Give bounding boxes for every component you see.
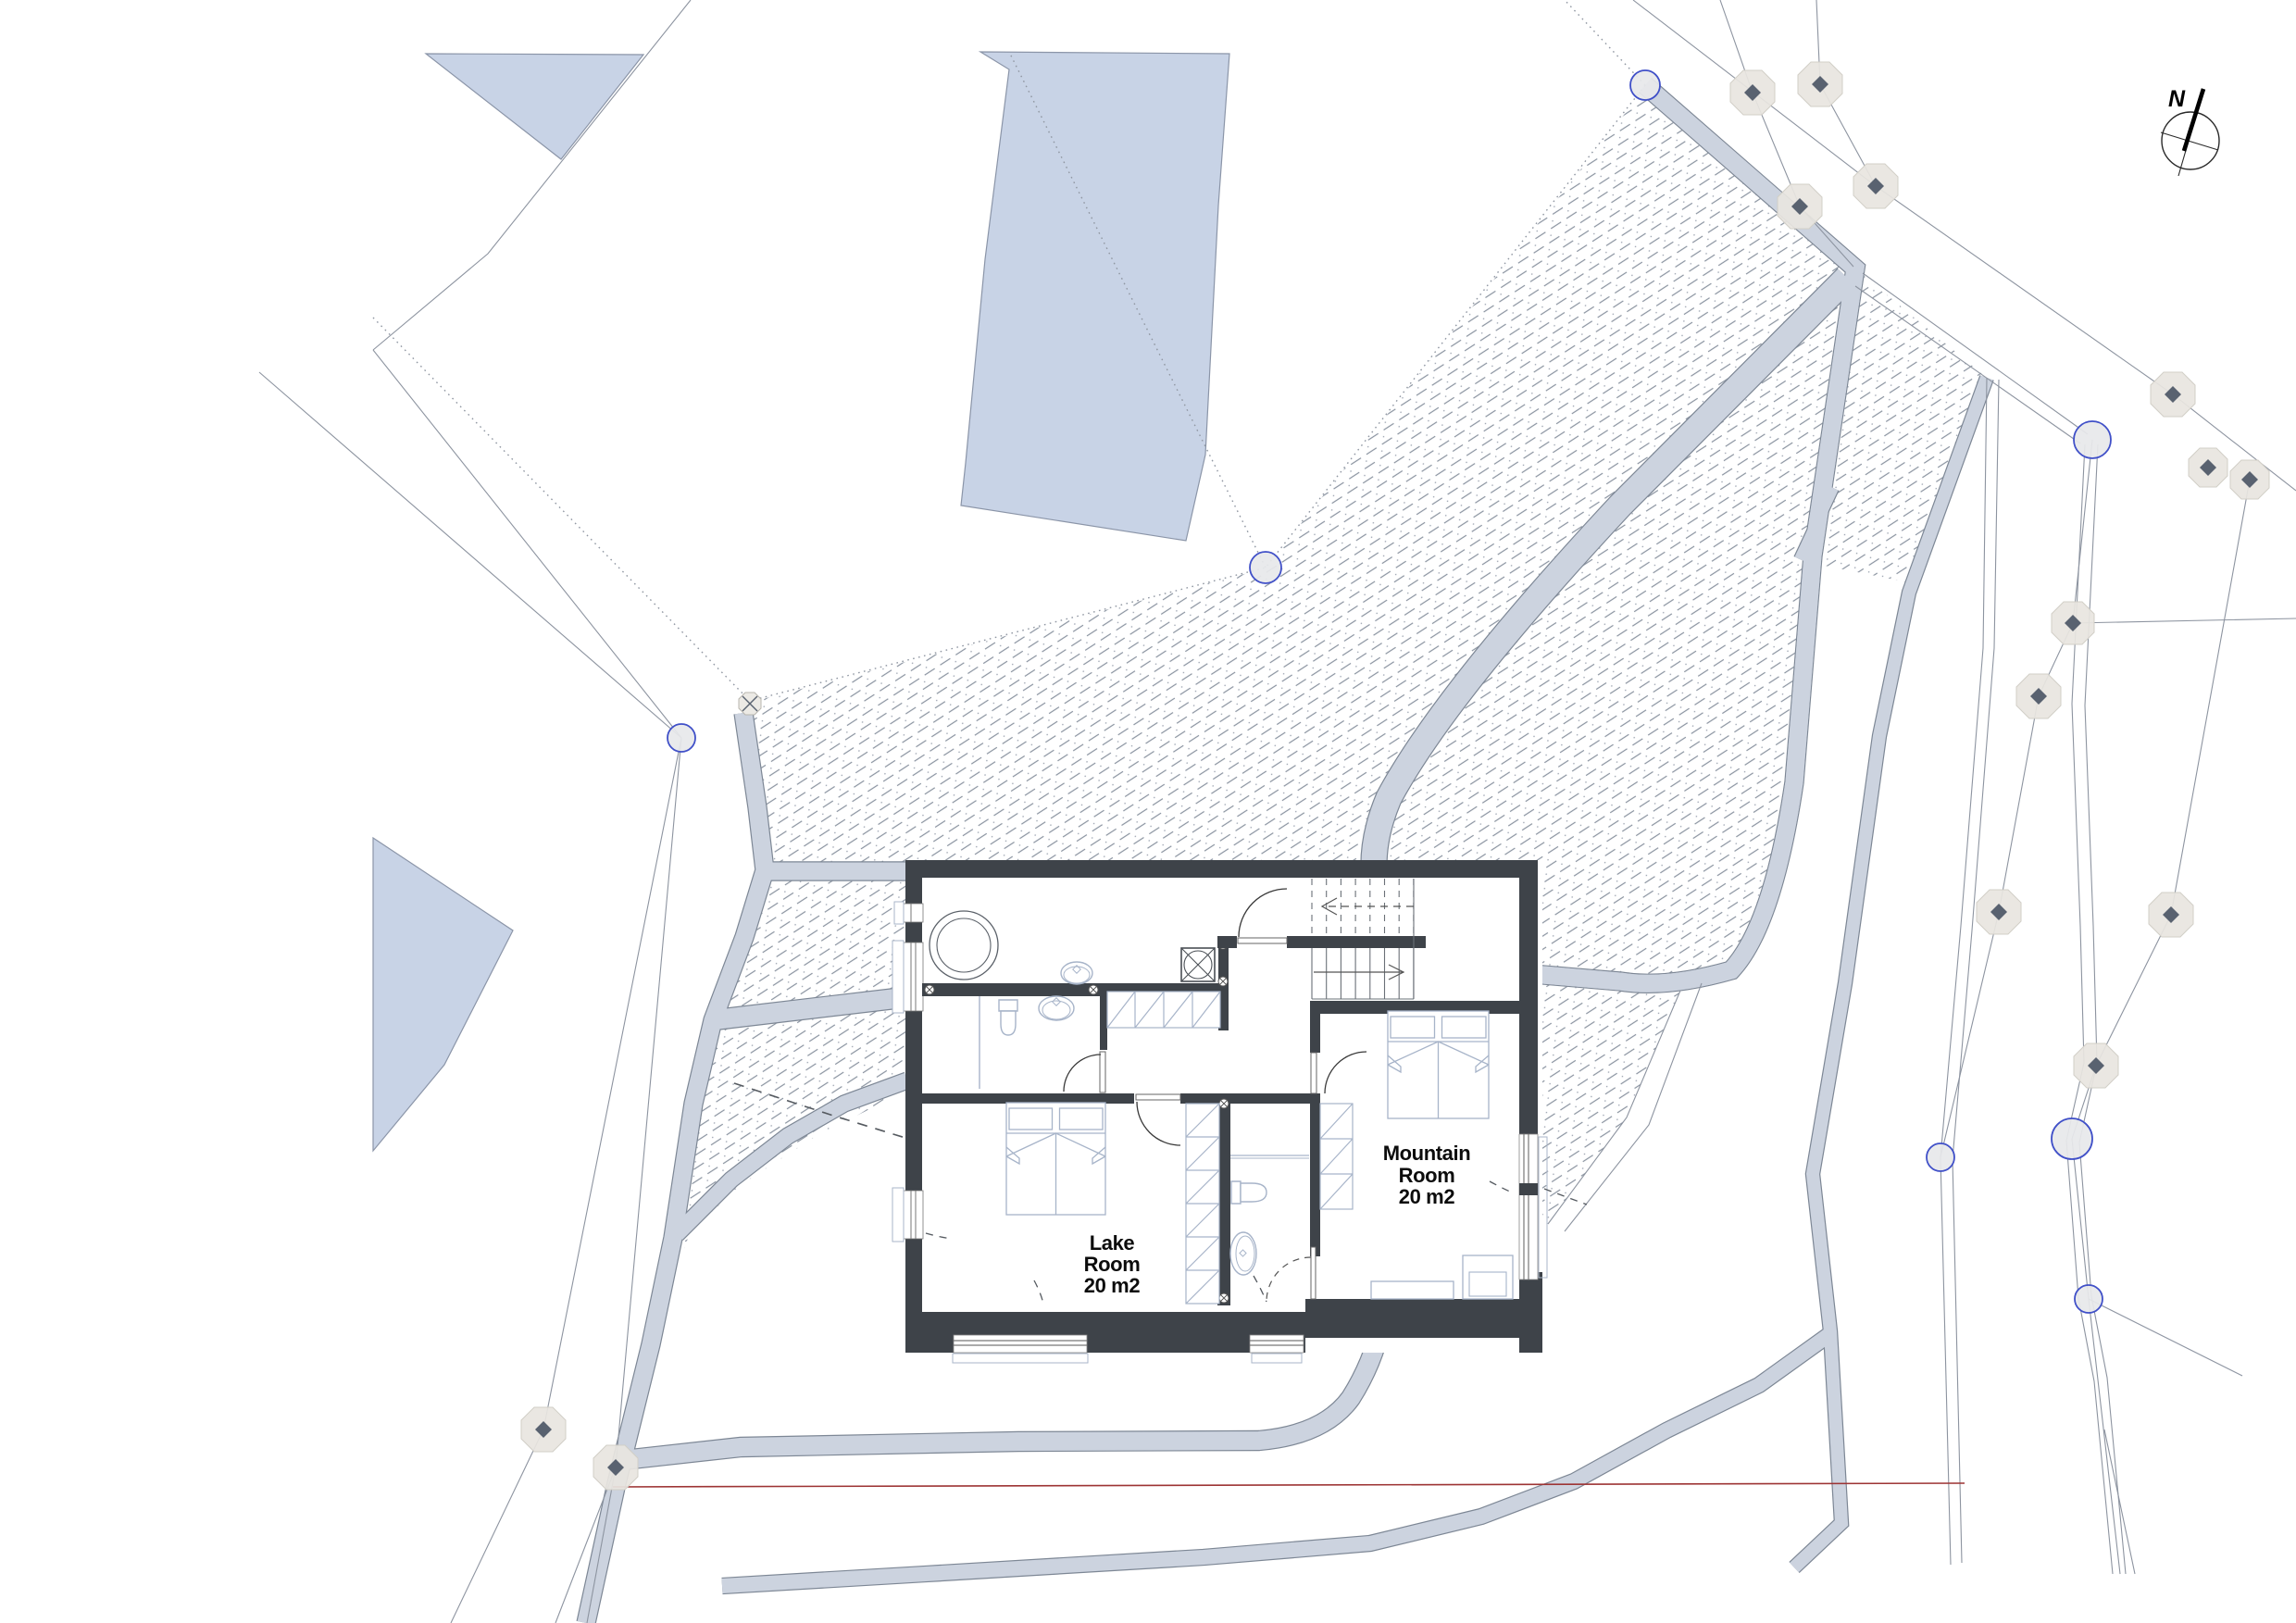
svg-text:Room: Room bbox=[1084, 1253, 1141, 1276]
svg-text:20 m2: 20 m2 bbox=[1399, 1185, 1455, 1208]
svg-text:Room: Room bbox=[1399, 1164, 1455, 1187]
svg-text:Mountain: Mountain bbox=[1383, 1142, 1471, 1165]
svg-text:N: N bbox=[2168, 86, 2186, 112]
svg-text:20 m2: 20 m2 bbox=[1084, 1274, 1141, 1297]
svg-text:Lake: Lake bbox=[1090, 1231, 1135, 1255]
